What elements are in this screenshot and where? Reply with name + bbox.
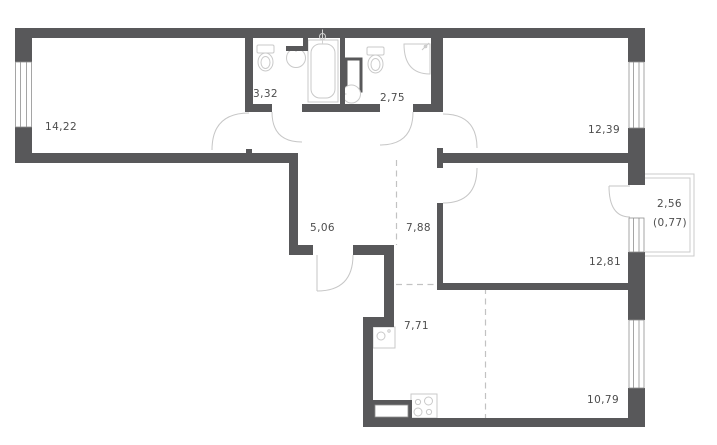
wall-bottom — [363, 418, 645, 427]
balcony-door-arc — [609, 186, 630, 217]
area-label-balcony: 2,56 — [657, 198, 682, 210]
window-balcony — [629, 218, 644, 252]
wall-bottom-left — [15, 153, 297, 163]
area-label-room-large: 14,22 — [45, 121, 77, 133]
toilet-icon-2 — [367, 47, 384, 73]
area-label-balcony-coeff: (0,77) — [653, 217, 687, 229]
window-bedroom-top-right — [629, 62, 644, 128]
area-label-bedroom-top-right: 12,39 — [588, 124, 620, 136]
area-label-toilet-shower: 2,75 — [380, 92, 405, 104]
kitchen-sink-icon — [373, 327, 395, 348]
door-arc-bedroom-right — [443, 168, 477, 203]
area-label-kitchen: 7,71 — [404, 320, 429, 332]
windows — [16, 62, 645, 417]
area-label-living-area: 10,79 — [587, 394, 619, 406]
door-arc-room-large — [212, 113, 249, 150]
area-label-closet: 5,06 — [310, 222, 335, 234]
area-label-hallway: 7,88 — [406, 222, 431, 234]
door-arc-bathroom — [272, 112, 302, 142]
shower-icon — [404, 43, 430, 74]
entrance-door-arc — [317, 255, 353, 291]
door-arcs — [212, 112, 630, 291]
window-kitchen-low — [375, 405, 408, 417]
stove-icon — [411, 394, 437, 418]
area-label-bedroom-right: 12,81 — [589, 256, 621, 268]
door-arc-toilet-shower — [380, 112, 413, 145]
bathtub-icon — [308, 40, 338, 102]
door-arc-bedroom-top-right — [443, 114, 477, 148]
window-living-area — [629, 320, 644, 388]
wall-top — [15, 28, 645, 38]
window-left — [16, 62, 32, 127]
area-label-bathroom: 3,32 — [253, 88, 278, 100]
apartment-floor-plan: 14,22 3,32 2,75 12,39 5,06 7,88 12,81 2,… — [0, 0, 717, 445]
balcony-outline — [645, 174, 694, 256]
floor-plan-svg: 14,22 3,32 2,75 12,39 5,06 7,88 12,81 2,… — [0, 0, 717, 445]
toilet-icon — [257, 45, 274, 71]
